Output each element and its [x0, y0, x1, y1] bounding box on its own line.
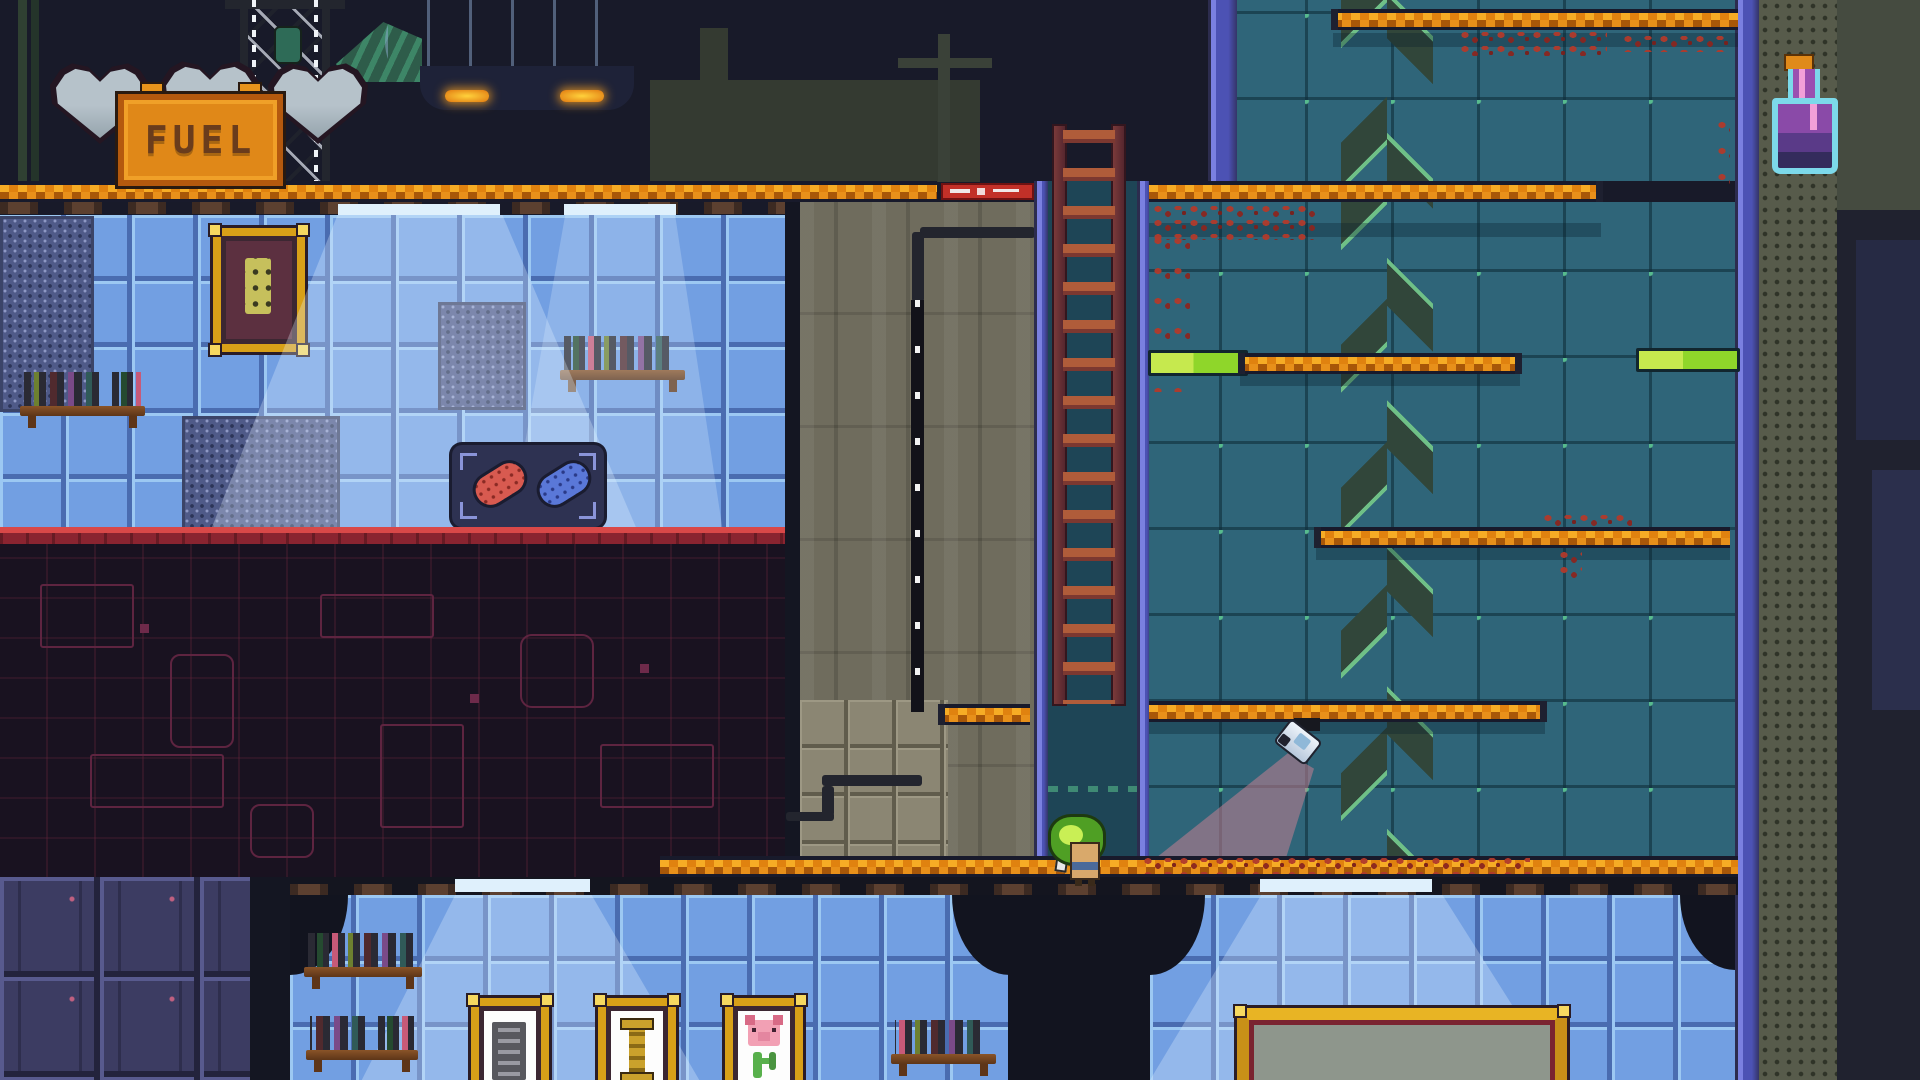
potion-cork	[1786, 56, 1812, 69]
frame-pig	[725, 998, 803, 1080]
room1-ceiling-gap	[455, 879, 590, 892]
airship-light-right	[560, 90, 604, 102]
potion-icon[interactable]	[1772, 56, 1826, 164]
pipe-bend-h2	[786, 812, 834, 821]
right-roof-mass	[1837, 0, 1920, 210]
pipe-top	[920, 227, 1035, 238]
potion-body	[1772, 98, 1838, 174]
airship-light-left	[445, 90, 489, 102]
platform-row5[interactable]	[1149, 701, 1545, 722]
bookshelf-b1	[304, 933, 422, 981]
platform-row2-right[interactable]	[1149, 181, 1601, 202]
pipe-drop	[912, 232, 924, 302]
room2-ceiling-gap	[1260, 879, 1432, 892]
ladder[interactable]	[1054, 126, 1124, 704]
bookshelf-b3	[891, 1020, 996, 1068]
fuel-sign: FUEL	[118, 94, 283, 186]
vines-row4-top	[1540, 513, 1632, 529]
bookshelf-b2	[306, 1016, 418, 1064]
pillar-mid	[1208, 0, 1237, 181]
room-divider-left	[250, 877, 290, 1080]
potion-neck	[1788, 69, 1820, 99]
energy-bar-right	[1636, 348, 1740, 372]
relic-chip	[245, 258, 271, 314]
vines-right-edge	[1714, 120, 1730, 200]
energy-bar-left	[1148, 350, 1248, 376]
frame-pig-art	[748, 1020, 780, 1046]
ladder-shaft-rail-line	[1048, 786, 1137, 792]
vines-top-b	[1620, 34, 1730, 52]
platform-row4[interactable]	[1316, 527, 1730, 548]
bookshelf-left	[20, 372, 145, 422]
fuel-sign-label: FUEL	[145, 118, 257, 162]
room1-dark-right	[1008, 895, 1150, 1080]
right-panel-a	[1856, 240, 1920, 440]
skyline-chimney	[700, 28, 728, 90]
player-body	[1070, 842, 1100, 880]
library-floor-base	[0, 533, 800, 544]
frame-cactus-art	[753, 1052, 762, 1078]
player-character[interactable]	[1048, 814, 1104, 878]
pipe-bend-h	[822, 775, 922, 786]
pillar-ladder-left	[1034, 181, 1048, 877]
vines-row2-h	[1150, 204, 1315, 240]
platform-shaft-small[interactable]	[940, 704, 1030, 725]
ceiling-gap-a	[338, 204, 500, 215]
dashed-cable	[911, 300, 924, 712]
pill-display-case	[452, 445, 604, 527]
skyline-tower	[938, 34, 950, 182]
platform-top[interactable]	[1333, 9, 1738, 30]
shaft-left-edge	[785, 202, 800, 877]
purple-wall	[0, 877, 250, 1080]
frame-pillar	[598, 998, 676, 1080]
vines-top-a	[1457, 30, 1607, 56]
red-pill	[470, 458, 530, 511]
right-panel-b	[1872, 470, 1920, 710]
frame-device-art	[492, 1022, 526, 1080]
warning-banner	[941, 183, 1034, 200]
platform-row3[interactable]	[1240, 353, 1520, 374]
frame-device	[471, 998, 549, 1080]
vines-floor	[1140, 856, 1530, 874]
game-viewport[interactable]: FUEL	[0, 0, 1920, 1080]
ceiling-gap-b	[564, 204, 676, 215]
airship-gondola	[420, 66, 634, 110]
big-frame	[1237, 1008, 1567, 1080]
circuit-wall	[0, 544, 785, 877]
pillar-teal-right	[1735, 0, 1759, 1080]
frame-pillar-art	[629, 1024, 645, 1078]
skyline-crossbeam	[898, 58, 992, 68]
vines-row4-hang	[1556, 550, 1582, 580]
